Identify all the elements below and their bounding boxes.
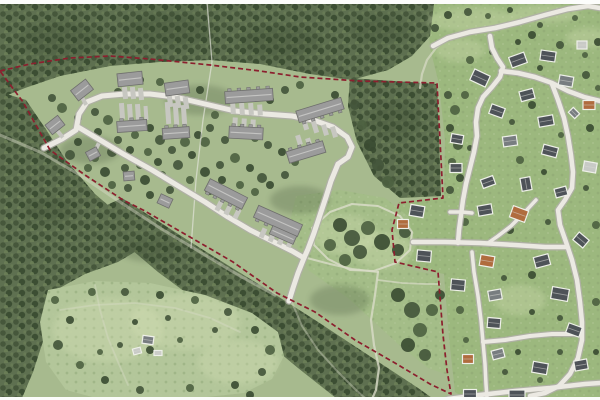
existing-house bbox=[538, 115, 555, 127]
tree bbox=[296, 81, 304, 89]
tree bbox=[186, 384, 194, 392]
tree bbox=[191, 296, 199, 304]
tree bbox=[132, 319, 138, 325]
tree bbox=[528, 271, 536, 279]
forest-shadow bbox=[25, 198, 75, 222]
tree bbox=[502, 369, 508, 375]
tree bbox=[131, 131, 139, 139]
forest-shadow bbox=[350, 16, 410, 44]
tree bbox=[464, 8, 472, 16]
parking-stub bbox=[248, 103, 254, 115]
tree bbox=[426, 304, 438, 316]
tree bbox=[211, 111, 219, 119]
image-margin-top bbox=[0, 0, 600, 4]
tree bbox=[357, 120, 367, 130]
tree bbox=[461, 91, 469, 99]
tree bbox=[485, 13, 491, 19]
tree bbox=[364, 139, 376, 151]
tree bbox=[361, 221, 375, 235]
parking-stub bbox=[239, 103, 245, 115]
grass-patch bbox=[198, 340, 278, 384]
tree bbox=[344, 230, 360, 246]
existing-house bbox=[398, 220, 409, 229]
tree bbox=[339, 254, 351, 266]
tree bbox=[76, 361, 84, 369]
existing-house bbox=[132, 347, 141, 355]
tree bbox=[251, 188, 259, 196]
planned-building bbox=[164, 80, 190, 96]
tree bbox=[557, 349, 563, 355]
tree bbox=[391, 288, 405, 302]
tree bbox=[97, 349, 103, 355]
tree bbox=[251, 326, 259, 334]
parking-stub bbox=[230, 102, 236, 114]
tree bbox=[281, 171, 289, 179]
tree bbox=[537, 65, 543, 71]
tree bbox=[507, 7, 513, 13]
tree bbox=[186, 176, 194, 184]
tree bbox=[48, 94, 56, 102]
tree bbox=[582, 52, 588, 58]
existing-house bbox=[477, 204, 493, 216]
parking-stub-rect bbox=[257, 104, 263, 115]
tree bbox=[463, 337, 469, 343]
forest-shadow bbox=[370, 102, 420, 138]
tree bbox=[593, 349, 599, 355]
tree bbox=[165, 315, 171, 321]
tree bbox=[556, 41, 564, 49]
tree bbox=[353, 245, 367, 259]
tree bbox=[537, 22, 543, 28]
parking-stub-rect bbox=[239, 103, 245, 115]
tree bbox=[431, 24, 439, 32]
tree bbox=[121, 288, 129, 296]
tree bbox=[100, 167, 110, 177]
tree bbox=[401, 338, 415, 352]
tree bbox=[188, 151, 196, 159]
existing-house bbox=[583, 101, 595, 110]
tree bbox=[156, 291, 164, 299]
tree bbox=[404, 302, 420, 318]
tree bbox=[206, 124, 214, 132]
existing-house bbox=[558, 75, 574, 87]
tree bbox=[101, 376, 109, 384]
tree bbox=[196, 86, 204, 94]
tree bbox=[541, 169, 547, 175]
tree bbox=[57, 103, 67, 113]
existing-house bbox=[583, 161, 598, 173]
tree bbox=[103, 115, 113, 125]
tree bbox=[166, 186, 174, 194]
tree bbox=[200, 137, 210, 147]
tree bbox=[224, 308, 232, 316]
forest-shadow bbox=[310, 285, 370, 315]
tree bbox=[154, 158, 162, 166]
forest-shadow bbox=[20, 22, 100, 58]
tree bbox=[444, 11, 452, 19]
tree bbox=[528, 31, 536, 39]
tree bbox=[114, 136, 122, 144]
existing-house bbox=[409, 204, 425, 217]
existing-house bbox=[532, 361, 549, 374]
aerial-basemap bbox=[0, 0, 600, 400]
tree bbox=[592, 221, 600, 229]
existing-house bbox=[577, 41, 587, 49]
tree bbox=[456, 306, 464, 314]
tree bbox=[146, 191, 154, 199]
tree bbox=[65, 150, 75, 160]
tree bbox=[331, 91, 339, 99]
tree bbox=[168, 146, 176, 154]
tree bbox=[446, 124, 454, 132]
tree bbox=[264, 141, 272, 149]
tree bbox=[324, 239, 336, 251]
existing-house bbox=[451, 279, 466, 291]
tree bbox=[221, 136, 229, 144]
tree bbox=[121, 164, 129, 172]
tree bbox=[545, 219, 551, 225]
tree bbox=[592, 298, 600, 306]
forest-shadow bbox=[120, 238, 180, 262]
tree bbox=[529, 309, 535, 315]
tree bbox=[266, 181, 274, 189]
tree bbox=[173, 160, 183, 170]
existing-house bbox=[488, 289, 503, 301]
tree bbox=[582, 71, 590, 79]
parking-stub-rect bbox=[230, 102, 236, 114]
tree bbox=[583, 185, 589, 191]
existing-house bbox=[520, 177, 532, 192]
tree bbox=[350, 100, 360, 110]
tree bbox=[515, 349, 521, 355]
aerial-site-plan-image bbox=[0, 0, 600, 400]
existing-house bbox=[502, 135, 517, 147]
existing-house bbox=[450, 164, 462, 173]
planned-building bbox=[117, 71, 143, 87]
parking-stub-rect bbox=[248, 103, 254, 115]
tree bbox=[117, 342, 123, 348]
tree bbox=[136, 386, 144, 394]
tree bbox=[84, 164, 92, 172]
tree bbox=[278, 148, 286, 156]
tree bbox=[586, 124, 594, 132]
existing-house bbox=[463, 355, 474, 364]
tree bbox=[281, 86, 289, 94]
planned-building bbox=[123, 171, 135, 181]
tree bbox=[572, 15, 578, 21]
tree bbox=[212, 327, 218, 333]
tree bbox=[537, 377, 543, 383]
existing-house bbox=[417, 250, 432, 262]
tree bbox=[413, 323, 427, 337]
tree bbox=[257, 173, 267, 183]
tree bbox=[509, 119, 515, 125]
tree bbox=[231, 381, 239, 389]
forest-shadow bbox=[125, 14, 215, 46]
tree bbox=[444, 91, 452, 99]
planned-building bbox=[116, 117, 147, 133]
existing-house bbox=[450, 134, 463, 145]
existing-house bbox=[154, 351, 162, 356]
tree bbox=[557, 315, 563, 321]
tree bbox=[236, 181, 244, 189]
tree bbox=[258, 368, 266, 376]
tree bbox=[140, 175, 150, 185]
tree bbox=[246, 164, 254, 172]
forest-shadow bbox=[240, 26, 320, 58]
tree bbox=[74, 138, 82, 146]
tree bbox=[446, 186, 454, 194]
tree bbox=[146, 346, 154, 354]
tree bbox=[374, 234, 390, 250]
tree bbox=[108, 181, 116, 189]
tree bbox=[450, 105, 460, 115]
tree bbox=[333, 218, 347, 232]
existing-house bbox=[487, 317, 501, 328]
tree bbox=[177, 337, 183, 343]
tree bbox=[466, 56, 474, 64]
building-roof-ridge bbox=[125, 176, 133, 177]
tree bbox=[516, 156, 524, 164]
tree bbox=[51, 296, 59, 304]
tree bbox=[144, 148, 152, 156]
tree bbox=[456, 174, 464, 182]
tree bbox=[501, 275, 507, 281]
existing-house bbox=[574, 359, 589, 371]
tree bbox=[91, 108, 99, 116]
tree bbox=[124, 184, 132, 192]
tree bbox=[265, 345, 275, 355]
existing-house bbox=[479, 254, 495, 267]
planned-building bbox=[162, 124, 190, 139]
tree bbox=[230, 153, 240, 163]
tree bbox=[200, 167, 210, 177]
tree bbox=[156, 78, 164, 86]
tree bbox=[558, 132, 564, 138]
parking-stub bbox=[257, 104, 263, 115]
tree bbox=[515, 39, 521, 45]
tree bbox=[88, 288, 96, 296]
street-stub bbox=[450, 212, 472, 213]
tree bbox=[419, 349, 431, 361]
existing-house bbox=[551, 287, 570, 302]
tree bbox=[372, 159, 384, 171]
tree bbox=[382, 176, 394, 188]
existing-house bbox=[142, 335, 154, 344]
tree bbox=[528, 101, 536, 109]
tree bbox=[53, 340, 63, 350]
existing-house bbox=[540, 50, 556, 62]
tree bbox=[66, 316, 74, 324]
grass-patch bbox=[494, 285, 546, 315]
tree bbox=[216, 161, 224, 169]
